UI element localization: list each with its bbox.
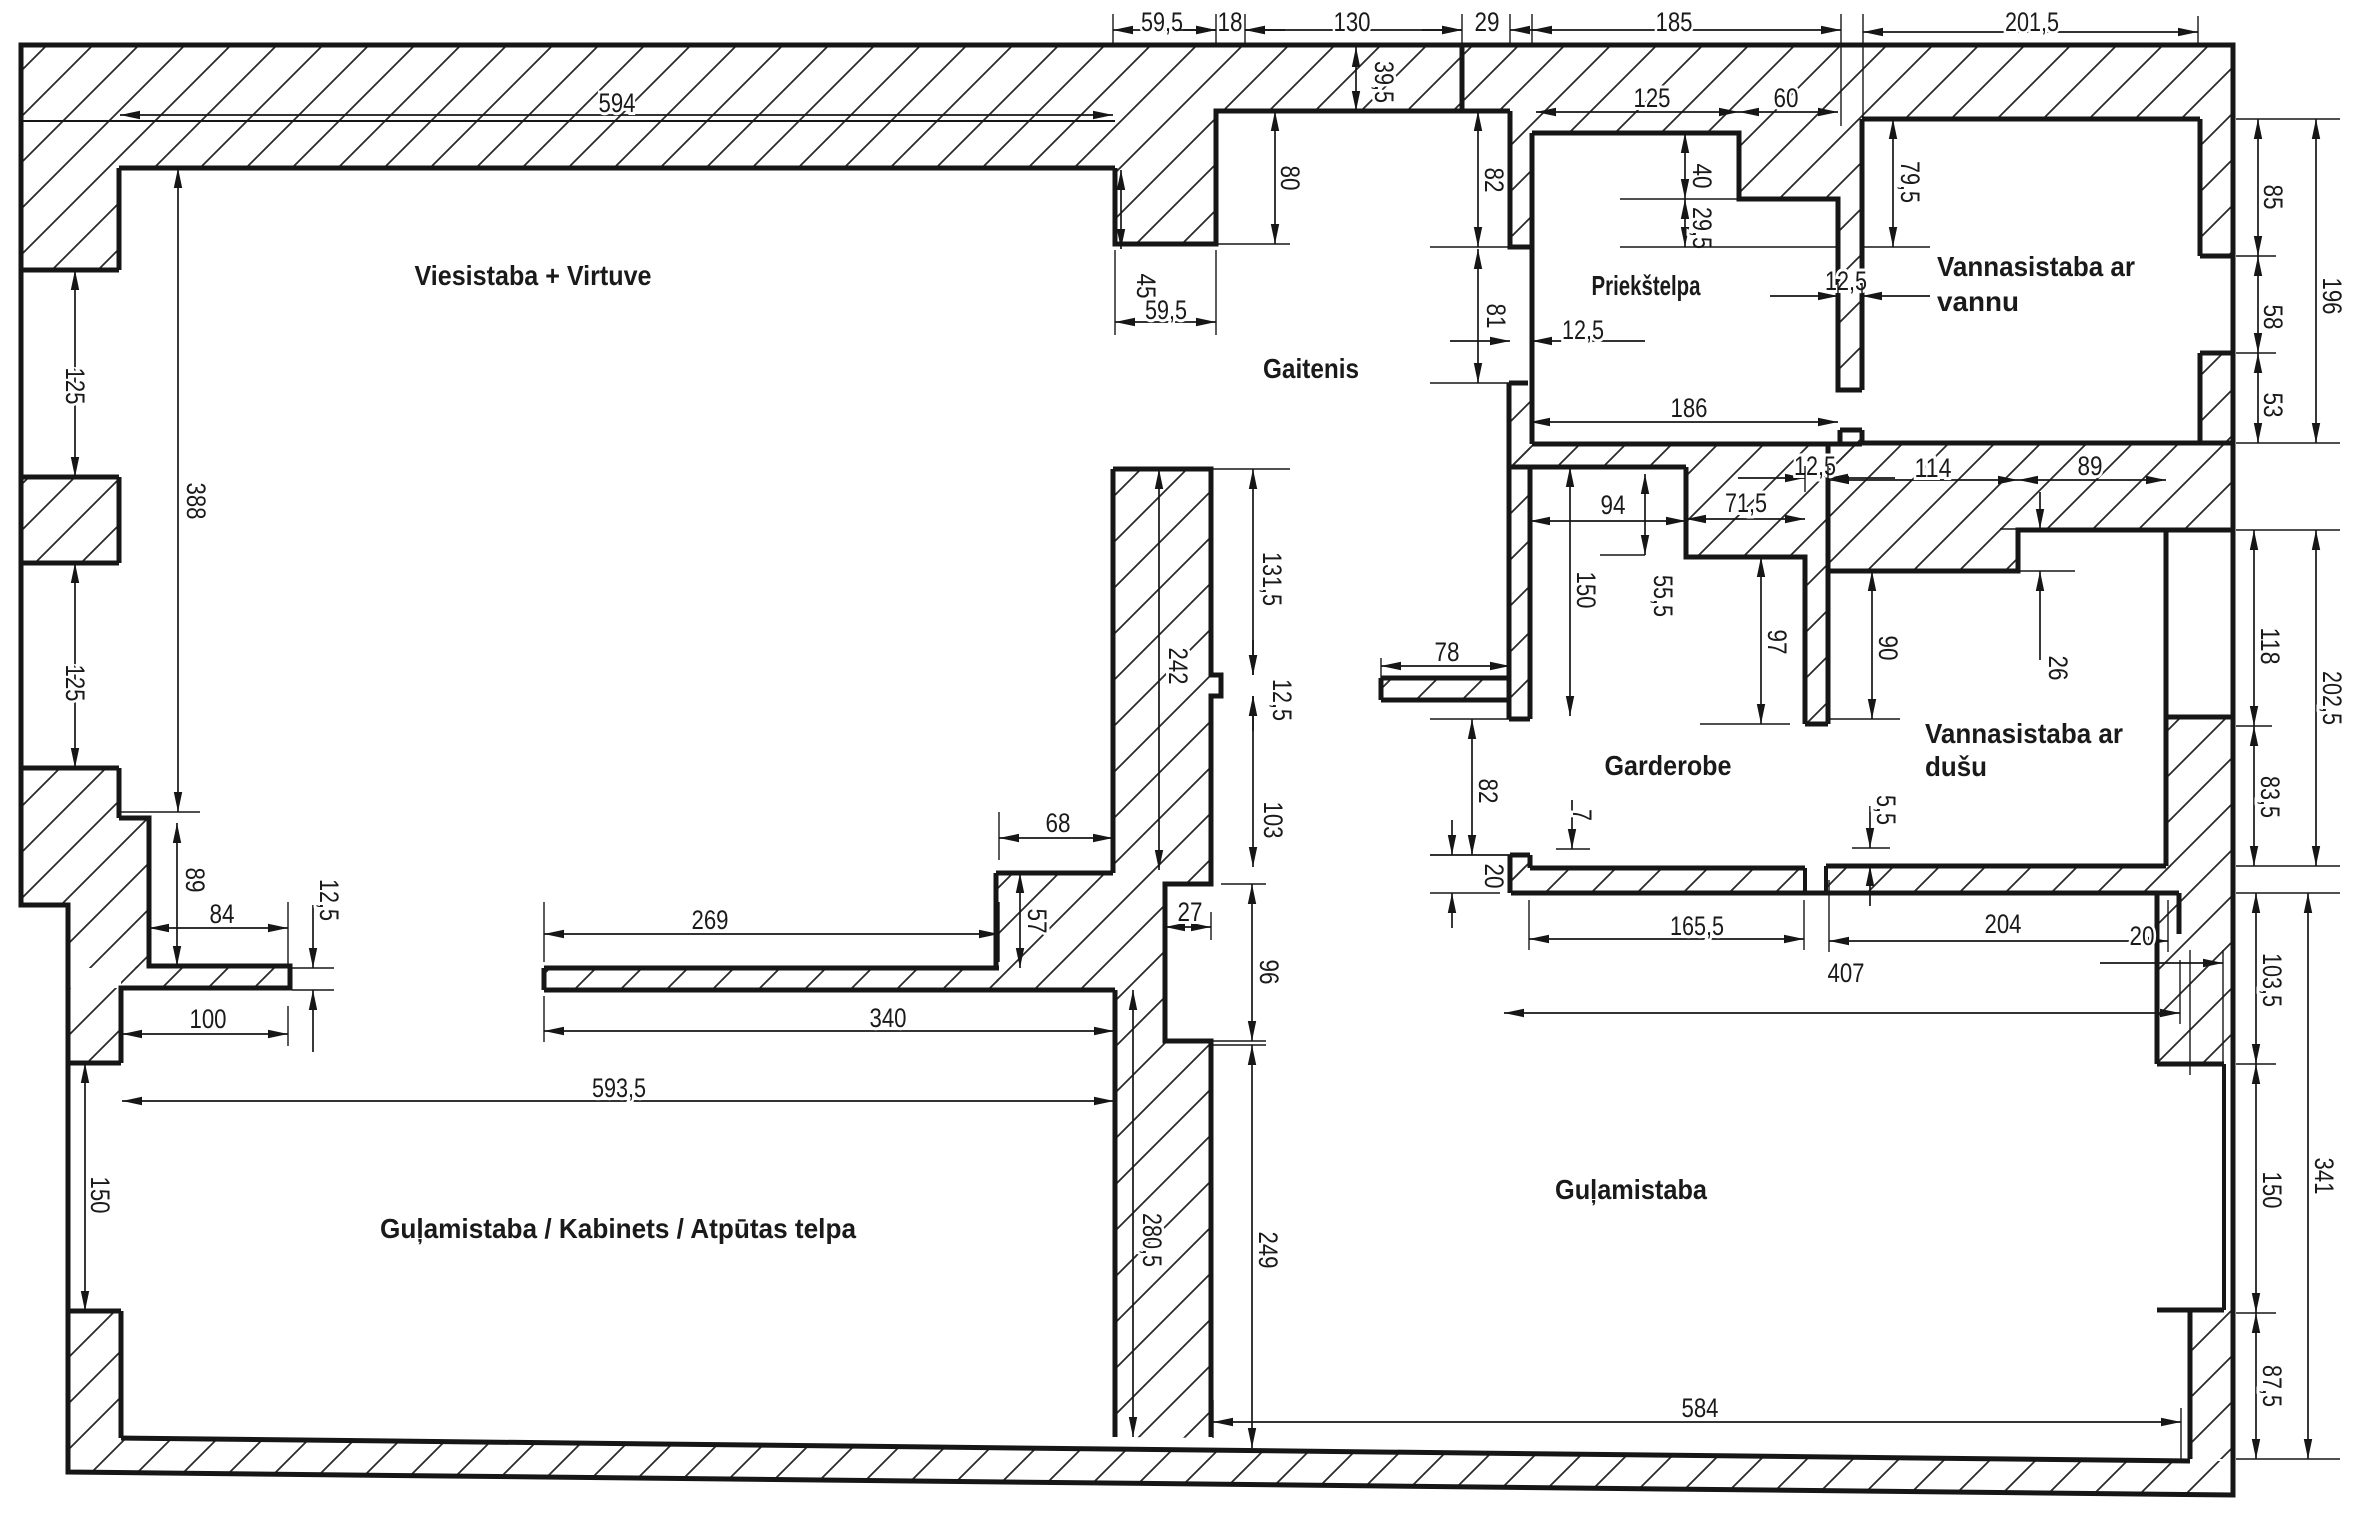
svg-text:242: 242 [1163,648,1193,685]
svg-text:196: 196 [2317,278,2347,315]
svg-text:81: 81 [1481,304,1511,329]
svg-text:12,5: 12,5 [1794,451,1836,481]
svg-text:59,5: 59,5 [1145,295,1187,325]
svg-text:131,5: 131,5 [1257,552,1287,606]
svg-text:20: 20 [1479,864,1509,889]
svg-text:12,5: 12,5 [1267,679,1297,721]
svg-text:97: 97 [1762,630,1792,655]
svg-text:Vannasistaba ar: Vannasistaba ar [1937,251,2135,282]
svg-text:Gaitenis: Gaitenis [1263,353,1359,384]
svg-text:125: 125 [60,368,90,405]
svg-text:84: 84 [210,899,235,929]
svg-text:58: 58 [2258,305,2288,330]
svg-text:89: 89 [2078,451,2103,481]
svg-text:79,5: 79,5 [1895,161,1925,203]
svg-text:125: 125 [1634,83,1671,113]
svg-text:85: 85 [2258,185,2288,210]
svg-text:12,5: 12,5 [1562,315,1604,345]
svg-text:12,5: 12,5 [1825,266,1867,296]
svg-text:Priekštelpa: Priekštelpa [1592,270,1701,301]
svg-text:59,5: 59,5 [1141,7,1183,37]
svg-text:103,5: 103,5 [2257,953,2287,1007]
svg-text:Garderobe: Garderobe [1605,750,1732,781]
svg-text:201,5: 201,5 [2005,7,2059,37]
svg-text:71,5: 71,5 [1725,488,1767,518]
svg-text:Viesistaba + Virtuve: Viesistaba + Virtuve [415,260,652,291]
svg-text:29,5: 29,5 [1687,207,1717,249]
svg-text:118: 118 [2255,628,2285,665]
svg-text:165,5: 165,5 [1670,911,1724,941]
svg-text:20: 20 [2130,921,2155,951]
svg-text:341: 341 [2309,1158,2339,1195]
svg-text:593,5: 593,5 [592,1073,646,1103]
svg-text:269: 269 [692,905,729,935]
svg-text:340: 340 [870,1003,907,1033]
svg-text:60: 60 [1774,83,1799,113]
svg-text:29: 29 [1475,7,1500,37]
svg-text:94: 94 [1601,490,1626,520]
svg-text:dušu: dušu [1925,751,1987,782]
svg-text:249: 249 [1253,1232,1283,1269]
svg-text:Vannasistaba ar: Vannasistaba ar [1925,718,2123,749]
svg-text:130: 130 [1334,7,1371,37]
svg-text:125: 125 [60,665,90,702]
svg-text:18: 18 [1218,7,1243,37]
svg-text:82: 82 [1473,779,1503,804]
svg-text:68: 68 [1046,808,1071,838]
svg-text:114: 114 [1915,453,1952,483]
svg-text:594: 594 [599,88,636,118]
svg-text:39,5: 39,5 [1369,61,1399,103]
svg-text:103: 103 [1258,802,1288,839]
svg-text:202,5: 202,5 [2317,671,2347,725]
svg-text:186: 186 [1671,393,1708,423]
svg-text:5,5: 5,5 [1871,795,1901,825]
svg-text:150: 150 [1571,572,1601,609]
svg-text:12,5: 12,5 [314,879,344,921]
svg-text:7: 7 [1567,809,1597,821]
svg-text:27: 27 [1178,897,1203,927]
svg-text:96: 96 [1254,960,1284,985]
svg-text:82: 82 [1479,168,1509,193]
svg-text:40: 40 [1687,164,1717,189]
svg-text:57: 57 [1022,909,1052,934]
svg-text:204: 204 [1985,909,2022,939]
svg-text:53: 53 [2258,393,2288,418]
svg-text:584: 584 [1682,1393,1719,1423]
svg-text:78: 78 [1435,637,1460,667]
svg-text:150: 150 [2257,1172,2287,1209]
svg-text:vannu: vannu [1937,286,2019,317]
svg-text:150: 150 [85,1177,115,1214]
svg-text:185: 185 [1656,7,1693,37]
svg-text:83,5: 83,5 [2255,776,2285,818]
svg-text:407: 407 [1828,958,1865,988]
svg-text:26: 26 [2043,656,2073,681]
svg-text:89: 89 [180,868,210,893]
svg-text:Guļamistaba: Guļamistaba [1555,1174,1707,1205]
svg-text:87,5: 87,5 [2257,1365,2287,1407]
svg-text:80: 80 [1275,166,1305,191]
svg-text:388: 388 [181,483,211,520]
svg-text:Guļamistaba / Kabinets / Atpūt: Guļamistaba / Kabinets / Atpūtas telpa [380,1213,856,1244]
svg-text:280,5: 280,5 [1137,1213,1167,1267]
svg-text:100: 100 [190,1004,227,1034]
svg-text:55,5: 55,5 [1648,575,1678,617]
svg-text:90: 90 [1873,636,1903,661]
